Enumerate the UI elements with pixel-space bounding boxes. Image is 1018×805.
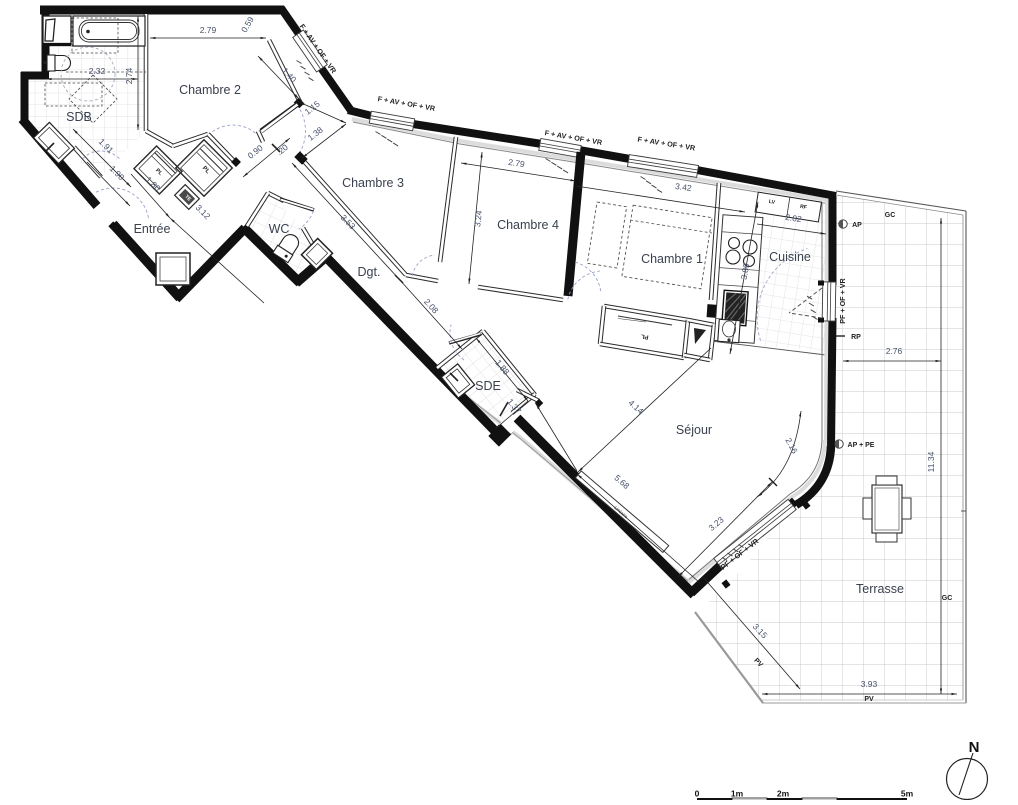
svg-text:Séjour: Séjour bbox=[676, 423, 712, 437]
svg-text:Dgt.: Dgt. bbox=[358, 265, 381, 279]
svg-text:PL: PL bbox=[640, 332, 649, 339]
svg-text:SDB: SDB bbox=[66, 110, 92, 124]
svg-text:5m: 5m bbox=[901, 789, 914, 799]
svg-text:Terrasse: Terrasse bbox=[856, 582, 904, 596]
svg-text:PV: PV bbox=[864, 696, 874, 703]
svg-text:Chambre 2: Chambre 2 bbox=[179, 83, 241, 97]
svg-text:WC: WC bbox=[269, 222, 290, 236]
svg-text:2.32: 2.32 bbox=[89, 66, 106, 76]
svg-text:N: N bbox=[969, 739, 980, 756]
svg-text:Chambre 4: Chambre 4 bbox=[497, 218, 559, 232]
svg-text:AP + PE: AP + PE bbox=[848, 442, 875, 449]
svg-text:Entrée: Entrée bbox=[134, 222, 171, 236]
svg-text:GC: GC bbox=[942, 595, 953, 602]
svg-text:Cuisine: Cuisine bbox=[769, 250, 811, 264]
svg-text:0: 0 bbox=[695, 789, 700, 799]
svg-text:AP: AP bbox=[852, 222, 862, 229]
svg-text:11.34: 11.34 bbox=[926, 451, 936, 472]
svg-text:Chambre 3: Chambre 3 bbox=[342, 176, 404, 190]
svg-text:2.74: 2.74 bbox=[124, 67, 134, 84]
svg-text:SDE: SDE bbox=[475, 379, 501, 393]
svg-text:RP: RP bbox=[851, 334, 861, 341]
svg-text:Chambre 1: Chambre 1 bbox=[641, 252, 703, 266]
svg-text:RF: RF bbox=[800, 204, 808, 211]
svg-text:2m: 2m bbox=[777, 789, 790, 799]
svg-text:3.24: 3.24 bbox=[472, 210, 484, 228]
svg-text:2.79: 2.79 bbox=[200, 25, 217, 35]
svg-text:PF + OF + VR: PF + OF + VR bbox=[838, 277, 847, 323]
svg-text:3.93: 3.93 bbox=[861, 679, 878, 689]
svg-text:1m: 1m bbox=[731, 789, 744, 799]
svg-text:2.76: 2.76 bbox=[886, 346, 903, 356]
svg-text:GC: GC bbox=[885, 212, 896, 219]
